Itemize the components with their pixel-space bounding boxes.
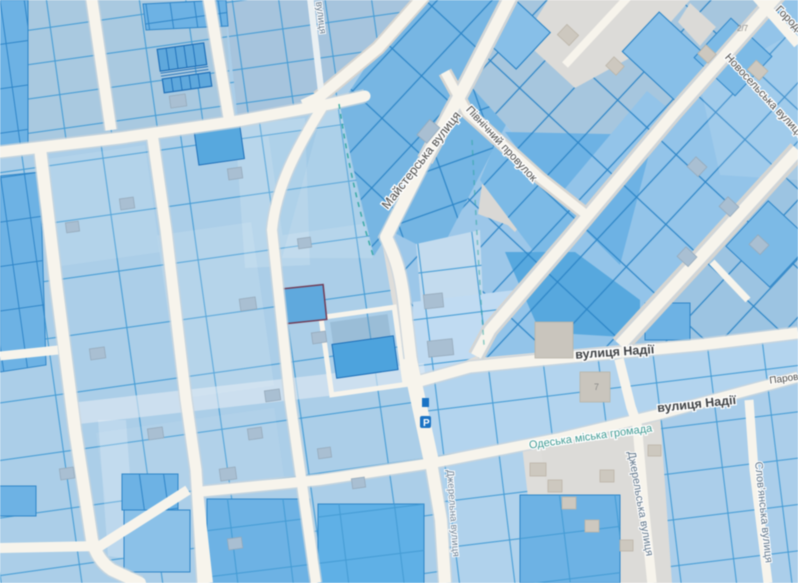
svg-text:7: 7 — [594, 382, 599, 392]
svg-text:2/7: 2/7 — [737, 24, 749, 33]
svg-text:P: P — [423, 418, 430, 429]
